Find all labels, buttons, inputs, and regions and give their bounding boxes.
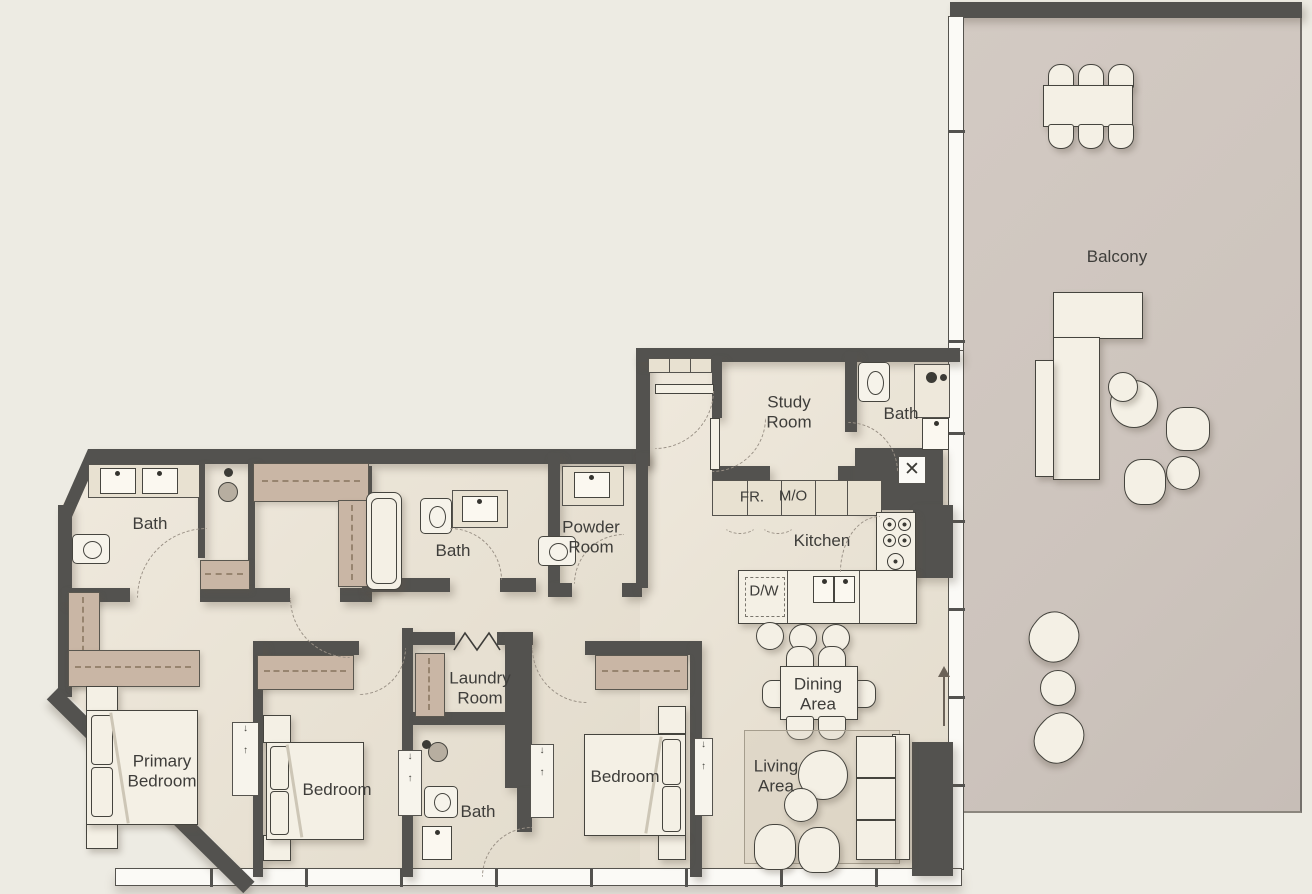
- floor-plan: Balcony: [0, 0, 1312, 894]
- closet-shelf: [200, 560, 250, 590]
- wall: [500, 578, 536, 592]
- window-mullion: [685, 868, 688, 887]
- balcony-chair: [1048, 124, 1074, 149]
- window-mullion: [210, 868, 213, 887]
- room-label-bath-bottom: Bath: [450, 802, 506, 822]
- bifold-door: [453, 630, 501, 652]
- pillow: [91, 767, 113, 817]
- balcony-armchair: [1124, 459, 1166, 505]
- mirror-panel: ↓↑: [398, 750, 422, 816]
- window-mullion: [948, 696, 965, 699]
- room-label-dining-area: Dining Area: [786, 674, 850, 713]
- window-mullion: [305, 868, 308, 887]
- window-mullion: [590, 868, 593, 887]
- shower-head: [422, 740, 431, 749]
- shower-drain: [218, 482, 238, 502]
- balcony-dining-table: [1043, 85, 1133, 127]
- balcony-chair: [1078, 124, 1104, 149]
- entry-shelf: [648, 358, 712, 373]
- sofa-cushion: [856, 736, 896, 778]
- nightstand: [263, 715, 291, 743]
- sink: [422, 826, 452, 860]
- sink: [462, 496, 498, 522]
- shower-control: [940, 374, 947, 381]
- balcony-sofa: [1053, 292, 1143, 339]
- wardrobe: [68, 650, 200, 687]
- sofa-cushion: [856, 778, 896, 820]
- wall: [413, 632, 455, 645]
- balcony-chair: [1108, 124, 1134, 149]
- wall: [845, 352, 857, 432]
- room-label-bath-top-right: Bath: [871, 404, 931, 424]
- balcony-stool: [1166, 456, 1200, 490]
- room-label-study-room: Study Room: [749, 392, 829, 431]
- direction-arrow: [943, 676, 945, 726]
- balcony-side-table: [1035, 360, 1054, 477]
- room-label-bedroom-middle: Bedroom: [282, 780, 392, 800]
- room-label-bath-middle: Bath: [423, 541, 483, 561]
- nightstand: [86, 686, 118, 712]
- nightstand: [658, 834, 686, 860]
- bathtub: [366, 492, 402, 590]
- wardrobe: [253, 463, 369, 502]
- wardrobe: [595, 655, 688, 690]
- wall: [585, 641, 692, 655]
- wall: [913, 505, 953, 578]
- wall: [505, 632, 532, 788]
- pillow: [662, 786, 681, 832]
- wardrobe: [338, 500, 369, 587]
- sink: [574, 472, 610, 498]
- toilet: [72, 534, 110, 564]
- room-label-powder-room: Powder Room: [552, 517, 630, 556]
- window-mullion: [948, 608, 965, 611]
- wall: [950, 2, 1302, 18]
- direction-arrow-head: [938, 666, 950, 677]
- room-label-bedroom-right: Bedroom: [570, 767, 680, 787]
- bar-stool: [756, 622, 784, 650]
- room-label-primary-bedroom: Primary Bedroom: [116, 751, 208, 790]
- mirror-panel: ↓↑: [694, 738, 713, 816]
- balcony-sofa: [1053, 337, 1100, 480]
- nightstand: [658, 706, 686, 734]
- armchair: [798, 827, 840, 873]
- wall: [200, 588, 290, 602]
- balcony-window: [948, 16, 964, 356]
- room-label-laundry-room: Laundry Room: [438, 668, 522, 707]
- sofa-cushion: [856, 820, 896, 860]
- window-mullion: [780, 868, 783, 887]
- toilet: [420, 498, 452, 534]
- wall: [88, 449, 648, 464]
- balcony-armchair: [1166, 407, 1210, 451]
- window-mullion: [948, 130, 965, 133]
- window-mullion: [948, 340, 965, 343]
- shower-drain: [428, 742, 448, 762]
- media-wall: [912, 742, 953, 876]
- nightstand: [86, 823, 118, 849]
- room-label-living-area: Living Area: [744, 756, 808, 795]
- room-label-balcony: Balcony: [1062, 247, 1172, 267]
- label-micro-oven: M/O: [771, 487, 815, 504]
- armchair: [754, 824, 796, 870]
- toilet: [858, 362, 890, 402]
- sink: [100, 468, 136, 494]
- room-label-bath-left: Bath: [120, 514, 180, 534]
- mirror-panel: ↓↑: [232, 722, 259, 796]
- wardrobe: [257, 655, 354, 690]
- balcony-round-table-small: [1040, 670, 1076, 706]
- cabinet-arc: [760, 512, 796, 534]
- shaft-box: ✕: [898, 456, 926, 484]
- pillow: [91, 715, 113, 765]
- balcony-round-table-small: [1108, 372, 1138, 402]
- shower-head: [926, 372, 937, 383]
- label-fridge: FR.: [732, 488, 772, 505]
- label-dishwasher: D/W: [744, 582, 784, 599]
- window-mullion: [948, 432, 965, 435]
- sink: [142, 468, 178, 494]
- cabinet-arc: [722, 512, 758, 534]
- mirror-panel: ↓↑: [530, 744, 554, 818]
- wall: [636, 453, 648, 588]
- shower-head: [224, 468, 233, 477]
- window-mullion: [875, 868, 878, 887]
- wall: [548, 583, 572, 597]
